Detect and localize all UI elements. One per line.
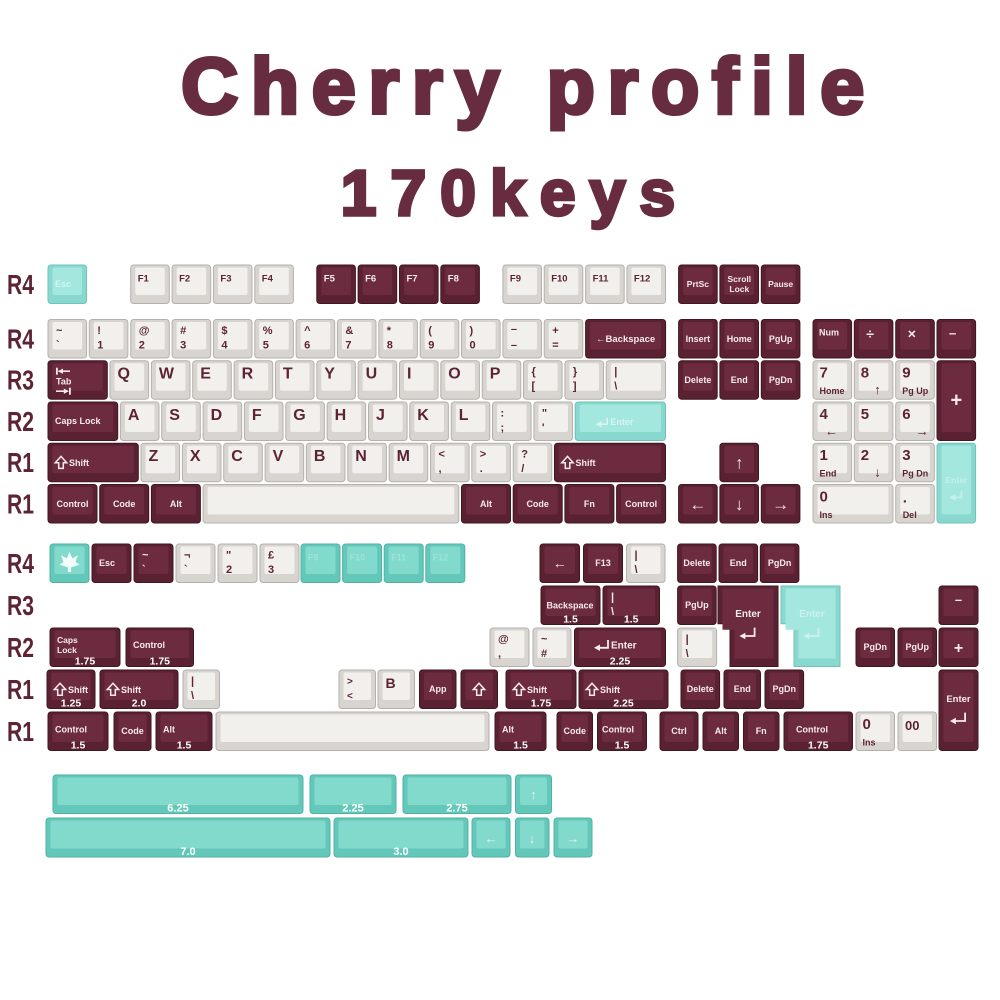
svg-text:\: \: [686, 648, 689, 660]
svg-text:R4: R4: [7, 324, 34, 355]
svg-text:D: D: [211, 407, 223, 424]
svg-text:Shift: Shift: [68, 685, 88, 695]
svg-text:$: $: [221, 325, 227, 337]
svg-text:Enter: Enter: [946, 475, 968, 485]
svg-text:`: `: [56, 340, 60, 352]
svg-text:End: End: [820, 469, 837, 479]
svg-text:↓: ↓: [735, 495, 744, 514]
svg-text:Z: Z: [149, 448, 159, 465]
svg-text:~: ~: [56, 325, 63, 337]
svg-text:Shift: Shift: [69, 458, 89, 468]
svg-text:1.75: 1.75: [150, 656, 171, 668]
svg-text:.: .: [903, 490, 907, 507]
svg-text:|: |: [191, 676, 194, 688]
svg-text:7: 7: [345, 340, 351, 352]
svg-text:R1: R1: [7, 674, 34, 705]
svg-text:End: End: [734, 684, 751, 694]
svg-text:Pg Dn: Pg Dn: [902, 469, 928, 479]
svg-text:Enter: Enter: [610, 417, 634, 427]
svg-text:2: 2: [139, 340, 145, 352]
svg-text:F12: F12: [433, 553, 449, 563]
svg-text:2: 2: [226, 564, 232, 576]
svg-text:F12: F12: [634, 274, 650, 285]
svg-text:J: J: [376, 407, 385, 424]
svg-text:Esc: Esc: [55, 279, 71, 289]
svg-text:F1: F1: [138, 274, 150, 285]
svg-text:>: >: [480, 449, 486, 461]
svg-text:Ins: Ins: [820, 510, 833, 520]
svg-text:Alt: Alt: [480, 499, 492, 509]
svg-text:8: 8: [861, 365, 869, 382]
svg-text:3: 3: [902, 447, 910, 464]
svg-text:↓: ↓: [529, 831, 536, 846]
svg-text:F11: F11: [593, 274, 610, 285]
svg-text:2: 2: [861, 447, 869, 464]
svg-text:Home: Home: [727, 334, 752, 344]
svg-text:F13: F13: [595, 558, 611, 568]
svg-text:|: |: [686, 634, 689, 646]
svg-text:F8: F8: [448, 274, 459, 285]
svg-text:←Backspace: ←Backspace: [596, 334, 655, 345]
svg-text:2.0: 2.0: [132, 698, 147, 710]
svg-text:F7: F7: [407, 274, 418, 285]
svg-text:F6: F6: [365, 274, 376, 285]
svg-text:Y: Y: [324, 366, 335, 383]
svg-text:↑: ↑: [735, 454, 744, 473]
svg-text:Backspace: Backspace: [547, 601, 594, 611]
svg-text:`: `: [142, 564, 146, 576]
svg-text:+: +: [951, 390, 963, 412]
svg-text:3: 3: [180, 340, 186, 352]
svg-text:↓: ↓: [874, 465, 881, 480]
svg-text:0: 0: [470, 340, 476, 352]
svg-text:–: –: [949, 326, 956, 341]
svg-text:Delete: Delete: [683, 558, 710, 568]
svg-text:2.25: 2.25: [613, 698, 634, 710]
svg-text:1.5: 1.5: [563, 614, 578, 626]
svg-text:A: A: [128, 407, 140, 424]
svg-text:Fn: Fn: [584, 499, 595, 509]
svg-text:Shift: Shift: [600, 685, 620, 695]
svg-text:[: [: [532, 381, 536, 393]
svg-text:;: ;: [501, 422, 505, 434]
svg-text:1.5: 1.5: [177, 740, 192, 752]
svg-text:¬: ¬: [184, 550, 190, 562]
svg-text:V: V: [273, 448, 284, 465]
svg-text:Enter: Enter: [799, 609, 825, 620]
svg-text:PgDn: PgDn: [769, 375, 793, 385]
svg-text:1.75: 1.75: [808, 740, 829, 752]
svg-text:W: W: [159, 366, 175, 383]
svg-text:9: 9: [902, 365, 910, 382]
svg-text:\: \: [635, 564, 638, 576]
svg-text:<: <: [439, 449, 445, 461]
svg-text:I: I: [407, 366, 411, 383]
svg-text:1.5: 1.5: [615, 740, 630, 752]
svg-text:7: 7: [820, 365, 828, 382]
svg-text:4: 4: [820, 406, 829, 423]
svg-text:Enter: Enter: [735, 609, 761, 620]
svg-text:Caps: Caps: [57, 635, 78, 645]
svg-text:|: |: [611, 592, 614, 604]
svg-text:Control: Control: [625, 499, 657, 509]
svg-text:|: |: [635, 550, 638, 562]
svg-text:Code: Code: [113, 499, 136, 509]
svg-text:6: 6: [902, 406, 910, 423]
svg-text:|: |: [614, 366, 617, 378]
svg-text:Insert: Insert: [686, 334, 711, 344]
svg-text:→: →: [567, 831, 580, 846]
svg-text:PgDn: PgDn: [863, 642, 887, 652]
svg-text:F4: F4: [262, 274, 274, 285]
svg-text:Code: Code: [564, 726, 587, 736]
svg-text:1.25: 1.25: [61, 698, 82, 710]
svg-text:,: ,: [498, 648, 501, 660]
svg-text:.: .: [480, 463, 483, 475]
svg-text:Lock: Lock: [729, 284, 749, 294]
svg-text:1: 1: [820, 447, 828, 464]
svg-text:@: @: [139, 325, 150, 337]
svg-text:End: End: [731, 375, 748, 385]
svg-text:T: T: [283, 366, 293, 383]
svg-text:F2: F2: [179, 274, 190, 285]
svg-text::: :: [501, 408, 505, 420]
svg-text:R1: R1: [7, 447, 34, 478]
svg-text:Tab: Tab: [56, 377, 72, 387]
svg-text:O: O: [448, 366, 460, 383]
svg-text:3: 3: [268, 564, 274, 576]
svg-text:2.25: 2.25: [610, 656, 631, 668]
svg-text:1.75: 1.75: [531, 698, 552, 710]
svg-text:L: L: [459, 407, 469, 424]
svg-text:PgUp: PgUp: [769, 334, 793, 344]
svg-text:Q: Q: [118, 366, 130, 383]
svg-text:8: 8: [387, 340, 393, 352]
svg-text:~: ~: [142, 550, 149, 562]
svg-text:H: H: [335, 407, 347, 424]
svg-text:PrtSc: PrtSc: [687, 279, 709, 289]
svg-text:R4: R4: [7, 269, 34, 300]
svg-text:C: C: [231, 448, 243, 465]
svg-text:*: *: [387, 325, 392, 337]
svg-text:App: App: [429, 684, 447, 694]
svg-text:÷: ÷: [866, 326, 874, 342]
svg-text:Ins: Ins: [863, 738, 876, 748]
svg-text:^: ^: [304, 325, 311, 337]
svg-text:E: E: [200, 366, 211, 383]
svg-text:00: 00: [905, 718, 919, 733]
svg-text:R: R: [242, 366, 254, 383]
svg-text:Alt: Alt: [170, 499, 182, 509]
svg-text:→: →: [772, 495, 789, 514]
svg-text:Alt: Alt: [502, 725, 514, 735]
svg-text:0: 0: [863, 716, 871, 733]
svg-text:1.5: 1.5: [513, 740, 528, 752]
svg-text:Delete: Delete: [684, 375, 711, 385]
svg-text:Shift: Shift: [121, 685, 141, 695]
svg-text:–: –: [955, 592, 962, 607]
svg-text:F5: F5: [324, 274, 336, 285]
svg-text:Delete: Delete: [687, 684, 714, 694]
svg-text:Ctrl: Ctrl: [671, 726, 687, 736]
svg-text:B: B: [314, 448, 326, 465]
svg-text:R3: R3: [7, 590, 34, 621]
svg-text:7.0: 7.0: [180, 846, 195, 858]
svg-text:9: 9: [428, 340, 434, 352]
svg-text:F3: F3: [220, 274, 231, 285]
svg-text:↑: ↑: [874, 382, 881, 397]
svg-text:PgDn: PgDn: [773, 684, 797, 694]
svg-text:Control: Control: [796, 725, 828, 735]
svg-text:): ): [470, 325, 474, 337]
svg-text:PgUp: PgUp: [685, 600, 709, 610]
svg-text:}: }: [573, 366, 578, 378]
svg-text:1.5: 1.5: [71, 740, 86, 752]
svg-text:R1: R1: [7, 489, 34, 520]
svg-text:Lock: Lock: [57, 645, 77, 655]
svg-text:+: +: [954, 640, 963, 657]
svg-text:F10: F10: [551, 274, 567, 285]
svg-text:\: \: [611, 606, 614, 618]
svg-text:>: >: [347, 677, 353, 688]
svg-text:5: 5: [861, 406, 869, 423]
svg-text:End: End: [730, 558, 747, 568]
svg-text:M: M: [397, 448, 410, 465]
svg-text:Shift: Shift: [576, 458, 596, 468]
svg-text:Control: Control: [602, 725, 634, 735]
svg-text:Control: Control: [133, 640, 165, 650]
svg-text:1.75: 1.75: [75, 656, 96, 668]
svg-text:2.75: 2.75: [446, 803, 467, 815]
svg-text:←: ←: [825, 424, 838, 439]
svg-text:Control: Control: [57, 499, 89, 509]
svg-text:\: \: [191, 690, 194, 702]
svg-text:F11: F11: [391, 553, 406, 563]
svg-text:X: X: [190, 448, 201, 465]
svg-text:&: &: [345, 325, 353, 337]
svg-text:R1: R1: [7, 716, 34, 747]
svg-text:R3: R3: [7, 365, 34, 396]
svg-text:←: ←: [553, 555, 567, 571]
svg-text:R2: R2: [7, 632, 34, 663]
svg-text:@: @: [498, 634, 509, 646]
svg-text:Fn: Fn: [756, 726, 767, 736]
svg-text:–: –: [511, 340, 517, 352]
svg-text:+: +: [552, 325, 558, 337]
svg-text:S: S: [169, 407, 180, 424]
svg-text:0: 0: [820, 489, 828, 506]
svg-text:#: #: [541, 648, 547, 660]
svg-text:Caps Lock: Caps Lock: [55, 416, 102, 426]
svg-text:6.25: 6.25: [167, 803, 188, 815]
svg-text:F: F: [252, 407, 262, 424]
svg-text:2.25: 2.25: [342, 803, 363, 815]
svg-text:!: !: [97, 325, 101, 337]
svg-text:Control: Control: [55, 725, 87, 735]
svg-text:G: G: [293, 407, 305, 424]
svg-text:N: N: [355, 448, 367, 465]
svg-text:F10: F10: [350, 553, 366, 563]
svg-text:–: –: [511, 324, 517, 336]
svg-text:\: \: [614, 381, 617, 393]
svg-text:K: K: [417, 407, 429, 424]
svg-text:Code: Code: [121, 726, 144, 736]
svg-text:→: →: [916, 424, 929, 439]
svg-text:×: ×: [908, 326, 916, 342]
svg-text:R2: R2: [7, 406, 34, 437]
svg-text:%: %: [263, 325, 273, 337]
svg-text:Enter: Enter: [946, 694, 971, 705]
svg-text:(: (: [428, 325, 432, 337]
svg-text:Shift: Shift: [527, 685, 547, 695]
svg-text:Pause: Pause: [768, 279, 793, 289]
svg-text:`: `: [184, 564, 188, 576]
svg-text:Pg Up: Pg Up: [902, 386, 929, 396]
svg-text:/: /: [521, 463, 524, 475]
svg-text:Alt: Alt: [715, 726, 727, 736]
svg-text:Enter: Enter: [611, 641, 637, 652]
svg-text:{: {: [532, 366, 537, 378]
svg-text:B: B: [386, 675, 396, 691]
svg-text:F9: F9: [308, 553, 319, 563]
svg-text:Scroll: Scroll: [727, 274, 751, 284]
svg-text:1.5: 1.5: [624, 614, 639, 626]
svg-text:↑: ↑: [530, 787, 537, 802]
svg-text:Del: Del: [903, 510, 917, 520]
svg-text:U: U: [366, 366, 378, 383]
svg-text:5: 5: [263, 340, 269, 352]
svg-text:#: #: [180, 325, 186, 337]
svg-text:←: ←: [689, 495, 706, 514]
svg-text:←: ←: [485, 831, 498, 846]
svg-text:4: 4: [221, 340, 228, 352]
svg-text:PgDn: PgDn: [768, 558, 792, 568]
svg-text:£: £: [268, 550, 274, 562]
svg-text:<: <: [347, 691, 353, 702]
svg-text:Esc: Esc: [99, 558, 115, 568]
svg-text:Num: Num: [819, 328, 839, 338]
svg-text:3.0: 3.0: [393, 846, 408, 858]
svg-text:P: P: [490, 366, 501, 383]
svg-text:Code: Code: [526, 499, 549, 509]
svg-text:=: =: [552, 340, 558, 352]
svg-text:?: ?: [521, 449, 528, 461]
svg-text:]: ]: [573, 381, 577, 393]
svg-text:1: 1: [97, 340, 103, 352]
svg-text:F9: F9: [510, 274, 521, 285]
svg-text:~: ~: [541, 634, 548, 646]
svg-text:,: ,: [439, 463, 442, 475]
svg-text:': ': [542, 422, 545, 434]
svg-text:": ": [226, 550, 231, 562]
svg-text:PgUp: PgUp: [905, 642, 929, 652]
svg-text:R4: R4: [7, 548, 34, 579]
svg-text:Home: Home: [820, 386, 845, 396]
svg-text:6: 6: [304, 340, 310, 352]
svg-text:": ": [542, 408, 547, 420]
svg-text:Alt: Alt: [163, 725, 175, 735]
